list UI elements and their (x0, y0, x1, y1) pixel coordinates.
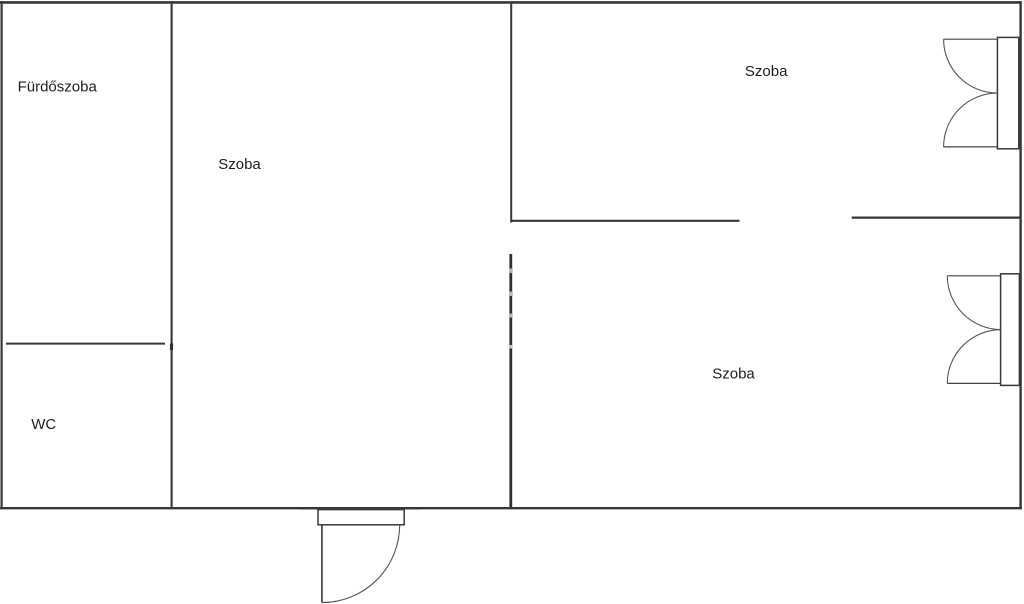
svg-text:Fürdőszoba: Fürdőszoba (18, 79, 98, 96)
svg-text:Szoba: Szoba (712, 365, 755, 382)
svg-text:Szoba: Szoba (218, 156, 261, 173)
svg-text:Szoba: Szoba (745, 63, 788, 80)
svg-text:WC: WC (31, 416, 56, 433)
